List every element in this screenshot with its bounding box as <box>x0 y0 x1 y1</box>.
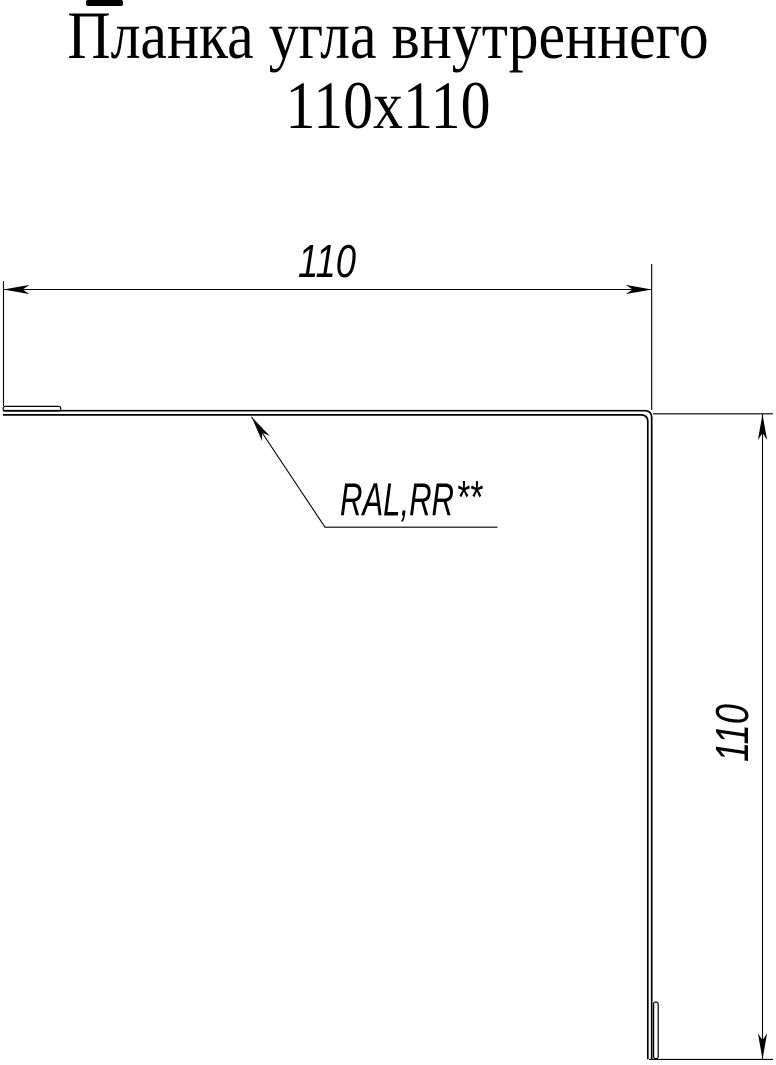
horizontal-dimension-value: 110 <box>298 235 356 287</box>
drawing-page: Планка угла внутреннего 110х110 110 <box>0 0 776 1065</box>
hem-fold-bottom <box>654 1002 659 1059</box>
corner-flashing-drawing: 110 110 RAL,RR ** <box>0 0 776 1065</box>
vertical-dimension-value: 110 <box>706 704 758 762</box>
horizontal-dimension: 110 <box>4 235 652 410</box>
leader-label-superscript: ** <box>456 471 484 523</box>
leader-callout: RAL,RR ** <box>248 414 498 527</box>
leader-label: RAL,RR <box>340 474 454 526</box>
profile-section <box>3 406 658 1059</box>
stray-mark <box>86 0 123 6</box>
leader-arrow <box>248 414 270 441</box>
profile-outer-edge <box>3 411 652 1060</box>
vertical-dimension: 110 <box>649 414 773 1060</box>
profile-inner-edge <box>3 415 648 1059</box>
